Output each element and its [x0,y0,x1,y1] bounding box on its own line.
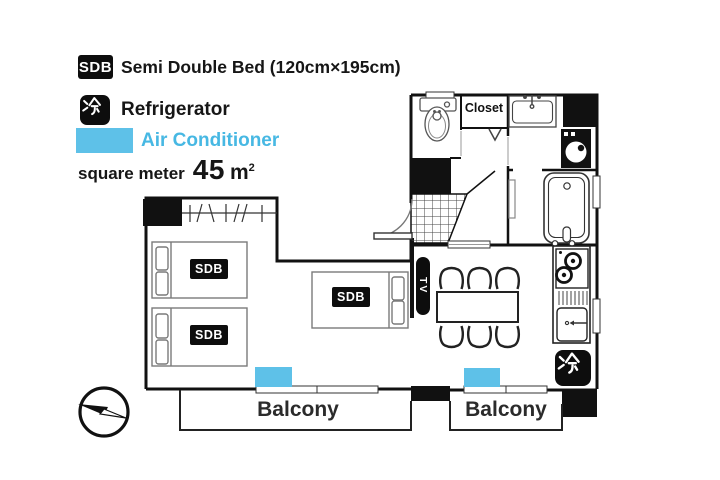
dining-table [437,292,518,322]
refrigerator-plan-badge [555,350,591,386]
air-conditioner-unit-right [464,368,500,387]
floor-area-label: square meter [78,164,185,184]
air-conditioner-legend-swatch [76,128,133,153]
tv-badge-label: TV [417,277,429,294]
bed-1-sdb-badge: SDB [190,259,228,279]
balcony-left-label: Balcony [238,398,358,422]
bed-3-sdb-badge: SDB [332,287,370,307]
stove-icon [556,249,588,288]
floor-area-unit: m2 [230,161,255,185]
bed-2-sdb-badge: SDB [190,325,228,345]
compass-icon [78,388,128,436]
sdb-legend-badge: SDB [78,55,113,79]
kitchen-counter [553,246,590,343]
sdb-legend-label: Semi Double Bed (120cm×195cm) [121,55,401,79]
refrigerator-legend-badge [80,95,110,125]
refrigerator-kanji-icon [555,350,581,376]
toilet-icon [420,98,456,141]
entry-door-arc [374,199,412,239]
floor-area: square meter 45 m2 [78,154,255,186]
kitchen-sink-icon [557,308,587,341]
washing-machine-icon [561,129,591,168]
closet-door-mark [489,129,501,140]
washbasin-icon [509,95,556,127]
balcony-right-label: Balcony [450,398,562,422]
closet-room-label: Closet [459,101,509,115]
air-conditioner-unit-left [255,367,292,387]
window-hatch-band [182,204,277,222]
refrigerator-legend-label: Refrigerator [121,95,230,125]
tv-badge: TV [416,257,430,315]
bathtub-icon [544,173,589,246]
refrigerator-kanji-icon [80,95,102,117]
air-conditioner-legend-label: Air Conditioner [141,128,279,153]
floorplan-page: SDB Semi Double Bed (120cm×195cm) Refrig… [0,0,720,480]
floor-area-value: 45 [193,154,225,186]
